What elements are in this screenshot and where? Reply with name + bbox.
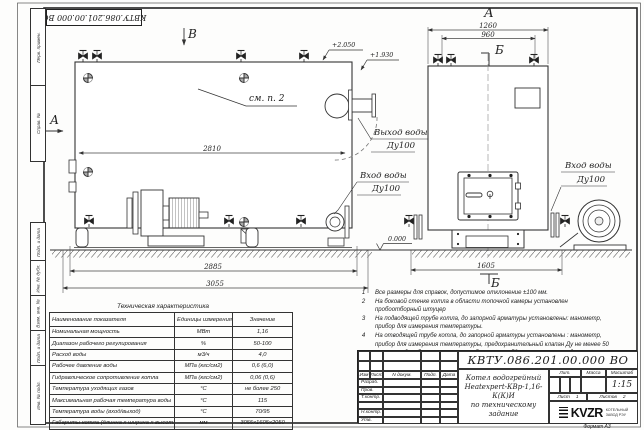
valve-icon <box>530 55 539 67</box>
product-title-line1: Котел водогрейный <box>466 374 542 383</box>
dim-front-width: 1260 <box>479 22 497 30</box>
vent-symbol-icon <box>84 168 93 177</box>
tb-product-name: Котел водогрейный Heatexpert-КВр-1,16-К(… <box>458 369 549 424</box>
dim-front-base: 1605 <box>477 262 495 270</box>
product-title-line2: Heatexpert-КВр-1,16-К(К)И <box>459 383 548 401</box>
vent-symbol-icon <box>84 74 93 83</box>
tb-col-izm: Изм <box>358 371 370 379</box>
dim-overall-length: 3055 <box>206 280 224 288</box>
tech-row: Максимальная рабочая температура воды°С1… <box>50 395 293 406</box>
tech-row: Номинальная мощностьМВт1,16 <box>50 327 293 338</box>
dim-front-valves: 960 <box>481 31 494 39</box>
tech-col-units: Единицы измерения <box>175 313 233 327</box>
tech-col-value: Значение <box>233 313 293 327</box>
vent-symbol-icon <box>240 74 249 83</box>
view-letter-b: В <box>188 27 197 41</box>
frame-cell-inv-podl: Инв. № подл. <box>30 365 46 425</box>
tb-col-doc: N докум. <box>383 371 421 379</box>
tech-row: Габариты котла (длинна х ширина х высота… <box>50 418 293 429</box>
frame-cell-sprav-no: Справ. № <box>30 85 46 162</box>
inlet-front-label: Вход воды <box>565 161 612 171</box>
front-view <box>405 27 627 284</box>
tech-row: Диапазон рабочего регулирования%50-100 <box>50 338 293 349</box>
frame-cell-podp-data-2: Подп. и дата <box>30 330 46 367</box>
elevation-zero: 0.000 <box>388 236 406 243</box>
valve-icon <box>93 51 102 63</box>
inlet-side-dn-label: Ду100 <box>372 184 400 194</box>
inlet-front-dn-label: Ду100 <box>577 175 605 185</box>
drawing-sheet: 2810 2885 3055 1260 960 1605 В А А Б Б с… <box>0 0 644 430</box>
product-title-line3: по техническому задание <box>459 401 548 419</box>
frame-cell-inv-dubl: Инв. № дубл. <box>30 260 46 297</box>
vent-symbol-icon <box>240 218 249 227</box>
section-letter-b-top: Б <box>495 43 504 57</box>
valve-icon <box>300 51 309 63</box>
furnace-door <box>458 172 521 220</box>
doc-number-stamp-text: КВТУ.086.201.00.000 ВО <box>42 13 146 22</box>
blower-fan <box>560 200 626 250</box>
tech-row: Расход водым3/ч4,0 <box>50 349 293 360</box>
dim-body-length: 2810 <box>203 145 221 153</box>
tech-table: Наименование показателя Единицы измерени… <box>49 312 293 430</box>
valve-icon <box>79 51 88 63</box>
company-logo: KVZR КОТЕЛЬНЫЙ ЗАВОД РЭУ <box>549 401 638 424</box>
elevation-outlet: +1.930 <box>370 52 393 59</box>
tb-sheets: Листов2 <box>587 393 638 401</box>
tb-row-nkontr: Н.контр. <box>358 409 383 417</box>
tb-col-data: Дата <box>440 371 458 379</box>
dim-base-length: 2885 <box>204 263 222 271</box>
tb-scale-label: Масштаб <box>606 369 638 377</box>
frame-cell-perv-primen: Перв. примен. <box>30 8 46 87</box>
tb-scale-value: 1:15 <box>606 377 638 393</box>
valve-icon <box>405 216 414 228</box>
doc-number-stamp: КВТУ.086.201.00.000 ВО <box>46 9 142 26</box>
see-note-ref: см. п. 2 <box>249 94 284 104</box>
logo-caption: КОТЕЛЬНЫЙ ЗАВОД РЭУ <box>606 408 629 416</box>
inlet-side-label: Вход воды <box>360 171 407 181</box>
tb-col-podp: Подп. <box>421 371 440 379</box>
tb-row-razrab: Разраб. <box>358 379 383 387</box>
view-letter-a-side: А <box>50 113 59 127</box>
note-3: 3На подводящей трубе котла, до запорной … <box>356 315 612 332</box>
valve-icon <box>434 55 443 67</box>
tb-row-blank <box>358 402 383 410</box>
frame-cell-vzam-inv: Взам. инв. № <box>30 295 46 332</box>
tb-row-utv: Утв. <box>358 417 383 425</box>
tech-col-name: Наименование показателя <box>50 313 175 327</box>
tb-mass-label: Масса <box>581 369 606 377</box>
valve-icon <box>561 216 570 228</box>
logo-bars-icon <box>559 407 568 418</box>
outlet-label: Выход воды <box>374 128 428 138</box>
tb-sheet: Лист1 <box>549 393 587 401</box>
view-letter-a-front: А <box>484 6 494 21</box>
valve-icon <box>237 51 246 63</box>
tech-row: Температура уходящих газов°Сне более 250 <box>50 383 293 394</box>
tech-row: Гидравлическое сопротивление котлаМПа (к… <box>50 372 293 383</box>
note-1: 1Все размеры для справок, допустимое отк… <box>356 289 612 298</box>
elevation-top: +2.050 <box>332 42 355 49</box>
tb-col-list: Лист <box>370 371 383 379</box>
tb-lit-label: Лит. <box>549 369 581 377</box>
tech-row: Температура воды (вход/выход)°С70/95 <box>50 406 293 417</box>
tb-doc-number: КВТУ.086.201.00.000 ВО <box>458 351 638 369</box>
frame-cell-podp-data-1: Подп. и дата <box>30 222 46 262</box>
tech-row: Рабочее давление водыМПа (кгс/см2)0,6 (6… <box>50 361 293 372</box>
tb-row-tkontr: Т.контр. <box>358 394 383 402</box>
format-note: Формат А3 <box>556 424 638 430</box>
valve-icon <box>447 55 456 67</box>
section-letter-b-bottom: Б <box>491 276 500 290</box>
tb-row-prov: Пров. <box>358 387 383 395</box>
tech-table-title: Техническая характеристика <box>49 303 277 310</box>
tech-characteristics: Техническая характеристика Наименование … <box>49 303 277 430</box>
logo-text: KVZR <box>571 406 603 420</box>
note-2: 2На боковой стенке котла в области топоч… <box>356 298 612 315</box>
outlet-dn-label: Ду100 <box>387 141 415 151</box>
title-block: Изм Лист N докум. Подп. Дата Разраб. Про… <box>357 350 637 423</box>
